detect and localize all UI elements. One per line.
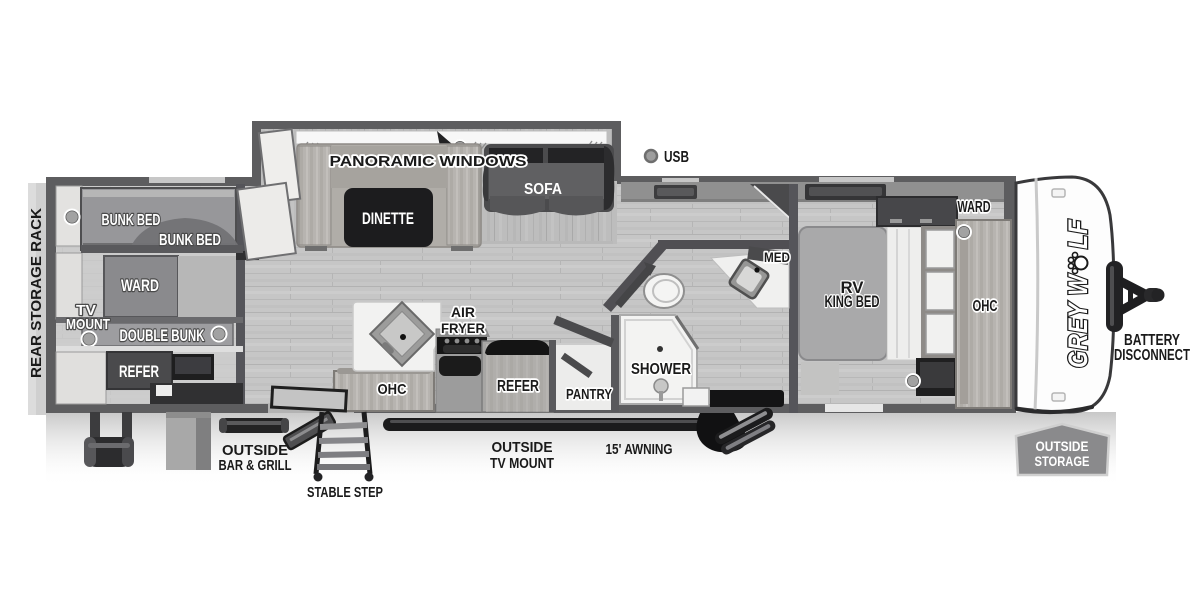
svg-text:TV MOUNT: TV MOUNT [490,455,554,472]
svg-text:DINETTE: DINETTE [362,210,414,228]
svg-text:FRYER: FRYER [441,320,485,336]
svg-text:SHOWER: SHOWER [631,361,691,378]
svg-text:WARD: WARD [958,199,991,216]
svg-text:LF: LF [1063,219,1093,249]
svg-text:OUTSIDE: OUTSIDE [492,439,553,456]
svg-text:PANORAMIC WINDOWS: PANORAMIC WINDOWS [330,153,527,170]
svg-text:BUNK BED: BUNK BED [102,212,161,229]
svg-text:OHC: OHC [378,381,407,398]
svg-text:REAR STORAGE RACK: REAR STORAGE RACK [28,208,45,378]
svg-text:15' AWNING: 15' AWNING [606,441,673,458]
svg-text:OUTSIDE: OUTSIDE [1036,438,1089,454]
svg-text:MED: MED [764,249,790,265]
svg-text:AIR: AIR [451,304,475,320]
svg-text:STABLE STEP: STABLE STEP [307,484,383,501]
svg-text:REFER: REFER [119,362,159,381]
svg-text:KING BED: KING BED [825,292,880,311]
svg-text:SOFA: SOFA [524,181,562,198]
svg-text:DOUBLE BUNK: DOUBLE BUNK [120,326,205,345]
svg-text:STORAGE: STORAGE [1035,453,1090,469]
svg-text:BAR & GRILL: BAR & GRILL [219,457,292,474]
svg-text:DISCONNECT: DISCONNECT [1114,347,1190,364]
svg-text:BUNK BED: BUNK BED [159,232,221,249]
svg-text:WARD: WARD [121,276,159,295]
svg-text:OHC: OHC [973,298,998,315]
svg-text:REFER: REFER [497,378,539,395]
svg-text:GREY W: GREY W [1063,273,1093,368]
svg-text:MOUNT: MOUNT [66,316,110,333]
svg-text:PANTRY: PANTRY [566,386,612,403]
svg-text:USB: USB [664,149,689,166]
